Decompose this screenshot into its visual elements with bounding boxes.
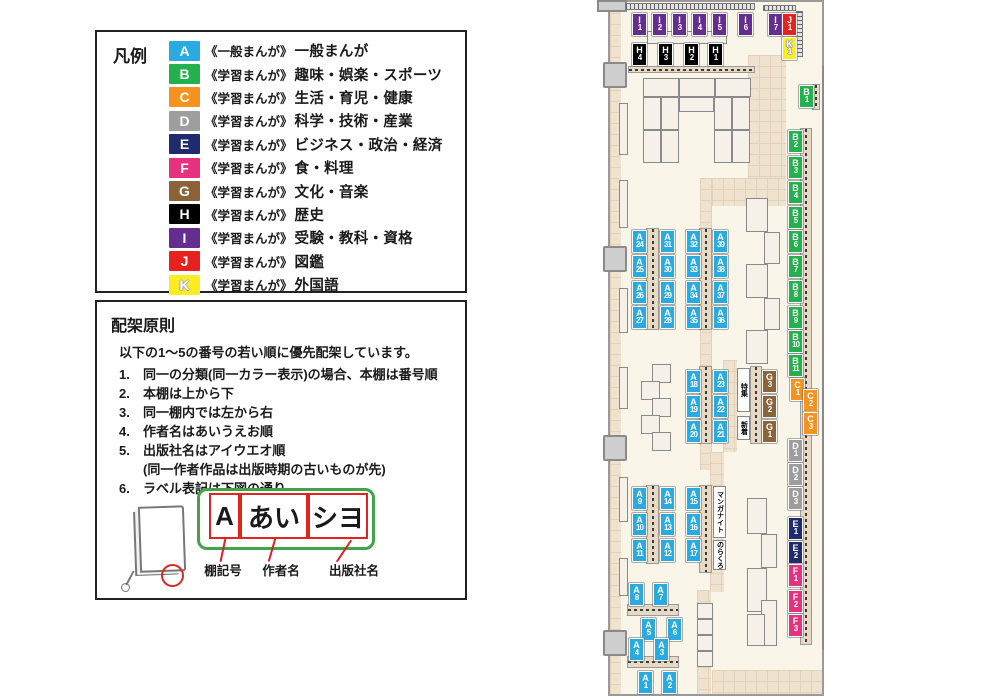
category-chip: K [169, 275, 200, 295]
legend-label: 外国語 [295, 274, 339, 295]
legend-series: 《学習まんが》 [205, 111, 293, 130]
wall-shelf [796, 11, 803, 57]
bookshelf [646, 485, 659, 564]
shelf-label-A19: A19 [686, 395, 701, 418]
table-block [697, 603, 713, 619]
shelf-label-A10: A10 [632, 513, 647, 536]
shelf-label-A26: A26 [632, 281, 647, 304]
book-icon [138, 505, 186, 573]
legend-series: 《学習まんが》 [205, 158, 293, 177]
legend-series: 《学習まんが》 [205, 88, 293, 107]
shelf-label-F1: F1 [788, 564, 803, 587]
legend-item-C: C《学習まんが》生活・育児・健康 [169, 86, 443, 109]
shelf-block [643, 78, 679, 97]
shelf-label-A9: A9 [632, 487, 647, 510]
shelf-block [643, 130, 661, 163]
legend-item-E: E《学習まんが》ビジネス・政治・経済 [169, 133, 443, 156]
category-chip: H [169, 204, 200, 224]
rule-number: 3. [119, 403, 143, 422]
rule-number: 2. [119, 384, 143, 403]
legend-title: 凡例 [113, 42, 147, 67]
legend-series: 《学習まんが》 [205, 275, 293, 294]
shelf-label-A21: A21 [713, 420, 728, 443]
shelf-label-A8: A8 [629, 583, 644, 606]
table-block [697, 651, 713, 667]
shelf-block [746, 330, 768, 364]
legend-item-G: G《学習まんが》文化・音楽 [169, 179, 443, 202]
bookshelf [628, 66, 755, 73]
shelf-label-A38: A38 [713, 255, 728, 278]
rule-text: 本棚は上から下 [143, 384, 234, 403]
shelf-block [764, 298, 780, 330]
shelf-label-A13: A13 [660, 513, 675, 536]
table-block [652, 432, 671, 451]
legend-label: ビジネス・政治・経済 [295, 134, 443, 155]
shelf-label-A1: A1 [638, 671, 653, 694]
shelf-label-A25: A25 [632, 255, 647, 278]
category-chip: F [169, 158, 200, 178]
wall-shelf [619, 288, 628, 333]
rule-number: 4. [119, 422, 143, 441]
shelf-label-A4: A4 [629, 638, 644, 661]
shelf-label-B8: B8 [788, 280, 803, 303]
shelf-block [714, 130, 732, 163]
shelf-label-B5: B5 [788, 206, 803, 229]
category-chip: B [169, 64, 200, 84]
shelf-label-B2: B2 [788, 130, 803, 153]
shelf-block [746, 264, 768, 298]
shelf-label-I6: I6 [738, 13, 753, 36]
legend-label: 科学・技術・産業 [295, 110, 413, 131]
legend-series: 《学習まんが》 [205, 205, 293, 224]
label-format-diagram: A あい シヨ 棚記号 作者名 出版社名 [97, 484, 469, 596]
shelf-label-A30: A30 [660, 255, 675, 278]
shelf-block [732, 130, 750, 163]
legend-item-H: H《学習まんが》歴史 [169, 203, 443, 226]
shelf-label-A37: A37 [713, 281, 728, 304]
legend-label: 食・料理 [295, 157, 354, 178]
legend-series: 《学習まんが》 [205, 252, 293, 271]
shelf-label-A32: A32 [686, 230, 701, 253]
legend-item-D: D《学習まんが》科学・技術・産業 [169, 109, 443, 132]
shelf-label-A35: A35 [686, 306, 701, 329]
shelf-label-B10: B10 [788, 330, 803, 353]
principles-intro: 以下の1〜5の番号の若い順に優先配架しています。 [119, 342, 418, 361]
shelf-label-F3: F3 [788, 614, 803, 637]
category-chip: D [169, 111, 200, 131]
shelf-label-G1: G1 [762, 420, 777, 443]
shelf-block [661, 97, 679, 130]
shelf-label-B4: B4 [788, 181, 803, 204]
shelf-label-A29: A29 [660, 281, 675, 304]
rule-2: 2.本棚は上から下 [119, 384, 438, 403]
caption-shelf-code: 棚記号 [195, 560, 251, 579]
shelf-label-A28: A28 [660, 306, 675, 329]
shelf-label-E2: E2 [788, 541, 803, 564]
legend-label: 趣味・娯楽・スポーツ [295, 64, 443, 85]
shelf-label-I3: I3 [672, 13, 687, 36]
special-shelf-label: マンガナイト [713, 486, 726, 538]
shelf-label-B11: B11 [788, 354, 803, 377]
legend-label: 生活・育児・健康 [295, 87, 413, 108]
legend-label: 受験・教科・資格 [295, 227, 413, 248]
door [603, 435, 627, 461]
rule-note: (同一作者作品は出版時期の古いものが先) [143, 460, 438, 479]
shelf-label-C3: C3 [803, 412, 818, 435]
bookshelf [646, 228, 659, 330]
door [603, 246, 627, 272]
rule-number: 5. [119, 441, 143, 460]
shelf-label-H2: H2 [684, 43, 699, 66]
category-chip: E [169, 134, 200, 154]
legend-series: 《学習まんが》 [205, 135, 293, 154]
wall [822, 66, 824, 650]
legend-label: 歴史 [295, 204, 325, 225]
wall-shelf [619, 103, 628, 155]
legend-series: 《一般まんが》 [205, 41, 293, 60]
door [603, 62, 627, 88]
principles-box: 配架原則 以下の1〜5の番号の若い順に優先配架しています。 1.同一の分類(同一… [95, 300, 467, 600]
walkway [712, 670, 822, 694]
shelf-label-B6: B6 [788, 230, 803, 253]
shelf-label-A27: A27 [632, 306, 647, 329]
shelf-label-A36: A36 [713, 306, 728, 329]
shelf-label-A39: A39 [713, 230, 728, 253]
shelf-label-A22: A22 [713, 395, 728, 418]
publisher-segment: シヨ [308, 493, 368, 539]
shelf-block [715, 78, 751, 97]
shelf-label-D1: D1 [788, 439, 803, 462]
table-block [697, 635, 713, 651]
shelf-block [661, 130, 679, 163]
rule-text: 同一の分類(同一カラー表示)の場合、本棚は番号順 [143, 365, 438, 384]
door [603, 630, 627, 656]
shelf-label-B1: B1 [799, 85, 814, 108]
shelf-label-A2: A2 [662, 671, 677, 694]
category-chip: C [169, 87, 200, 107]
category-chip: I [169, 228, 200, 248]
rule-text: 出版社名はアイウエオ順 [143, 441, 285, 460]
rule-number: 1. [119, 365, 143, 384]
walkway [748, 55, 786, 178]
rules-list: 1.同一の分類(同一カラー表示)の場合、本棚は番号順2.本棚は上から下3.同一棚… [119, 365, 438, 498]
wall-shelf [625, 3, 755, 10]
shelf-label-H4: H4 [632, 43, 647, 66]
legend-item-K: K《学習まんが》外国語 [169, 273, 443, 296]
shelf-block [643, 97, 661, 130]
shelf-label-I5: I5 [712, 13, 727, 36]
wall-shelf [619, 367, 628, 409]
rule-text: 作者名はあいうえお順 [143, 422, 273, 441]
shelf-label-F2: F2 [788, 590, 803, 613]
shelf-label-B3: B3 [788, 156, 803, 179]
shelf-block [764, 232, 780, 264]
rule-3: 3.同一棚内では左から右 [119, 403, 438, 422]
legend-label: 文化・音楽 [295, 181, 369, 202]
legend-item-A: A《一般まんが》一般まんが [169, 39, 443, 62]
shelf-label-I7: I7 [768, 13, 783, 36]
table-block [697, 619, 713, 635]
shelf-label-A7: A7 [653, 583, 668, 606]
legend-box: 凡例 A《一般まんが》一般まんがB《学習まんが》趣味・娯楽・スポーツC《学習まん… [95, 30, 467, 293]
shelf-label-A16: A16 [686, 513, 701, 536]
caption-publisher: 出版社名 [319, 560, 389, 579]
wall-stub [597, 0, 627, 12]
author-segment: あい [240, 493, 308, 539]
shelf-block [679, 97, 714, 112]
shelf-label-I2: I2 [652, 13, 667, 36]
category-chip: J [169, 251, 200, 271]
rule-4: 4.作者名はあいうえお順 [119, 422, 438, 441]
legend-series: 《学習まんが》 [205, 182, 293, 201]
caption-author: 作者名 [253, 560, 309, 579]
rule-5: 5.出版社名はアイウエオ順 [119, 441, 438, 460]
special-shelf-label: のらくろ [713, 540, 726, 570]
shelf-label-A12: A12 [660, 539, 675, 562]
legend-label: 一般まんが [295, 40, 369, 61]
shelf-label-A15: A15 [686, 487, 701, 510]
shelf-label-I1: I1 [632, 13, 647, 36]
shelf-label-A23: A23 [713, 370, 728, 393]
shelf-label-A17: A17 [686, 539, 701, 562]
shelf-block [714, 97, 732, 130]
shelf-label-A24: A24 [632, 230, 647, 253]
shelf-code-segment: A [209, 493, 240, 539]
category-chip: A [169, 41, 200, 61]
shelf-block [679, 78, 715, 97]
legend-item-I: I《学習まんが》受験・教科・資格 [169, 226, 443, 249]
bookshelf [750, 366, 762, 444]
wall-shelf [763, 5, 796, 11]
wall-shelf [619, 477, 628, 522]
shelf-label-C2: C2 [803, 389, 818, 412]
shelf-label-G3: G3 [762, 370, 777, 393]
book-tag-loop [121, 583, 130, 592]
legend-series: 《学習まんが》 [205, 65, 293, 84]
special-shelf-label: 新着 [737, 416, 750, 440]
special-shelf-label: 特集 [737, 368, 750, 412]
shelf-label-B7: B7 [788, 255, 803, 278]
floor-map: I1I2I3I4I5I6I7J1K1H4H3H2H1B1B2B3B4B5B6B7… [595, 0, 840, 700]
shelf-label-H3: H3 [658, 43, 673, 66]
shelf-label-D3: D3 [788, 487, 803, 510]
shelf-label-A31: A31 [660, 230, 675, 253]
shelf-block [747, 498, 767, 534]
shelf-label-E1: E1 [788, 517, 803, 540]
shelf-label-B9: B9 [788, 306, 803, 329]
shelf-block [761, 534, 777, 568]
category-chip: G [169, 181, 200, 201]
legend-item-B: B《学習まんが》趣味・娯楽・スポーツ [169, 62, 443, 85]
shelf-label-I4: I4 [692, 13, 707, 36]
rule-1: 1.同一の分類(同一カラー表示)の場合、本棚は番号順 [119, 365, 438, 384]
legend-item-J: J《学習まんが》図鑑 [169, 250, 443, 273]
principles-title: 配架原則 [111, 312, 175, 336]
shelf-label-G2: G2 [762, 395, 777, 418]
shelf-label-A11: A11 [632, 539, 647, 562]
legend-label: 図鑑 [295, 251, 325, 272]
legend-item-F: F《学習まんが》食・料理 [169, 156, 443, 179]
shelf-label-A18: A18 [686, 370, 701, 393]
shelf-label-A14: A14 [660, 487, 675, 510]
shelf-label-A3: A3 [654, 638, 669, 661]
shelf-label-A20: A20 [686, 420, 701, 443]
shelf-label-A6: A6 [667, 618, 682, 641]
legend-rows: A《一般まんが》一般まんがB《学習まんが》趣味・娯楽・スポーツC《学習まんが》生… [169, 39, 443, 296]
wall-shelf [619, 180, 628, 228]
shelf-label-J1: J1 [782, 13, 797, 36]
label-highlight-circle [161, 564, 184, 587]
shelf-label-D2: D2 [788, 463, 803, 486]
shelf-label-A34: A34 [686, 281, 701, 304]
shelf-label-A33: A33 [686, 255, 701, 278]
shelf-label-H1: H1 [708, 43, 723, 66]
shelf-label-K1: K1 [782, 37, 797, 60]
legend-series: 《学習まんが》 [205, 228, 293, 247]
shelf-block [747, 614, 765, 646]
shelf-block [732, 97, 750, 130]
wall-shelf [619, 558, 628, 596]
shelf-block [746, 198, 768, 232]
rule-text: 同一棚内では左から右 [143, 403, 273, 422]
